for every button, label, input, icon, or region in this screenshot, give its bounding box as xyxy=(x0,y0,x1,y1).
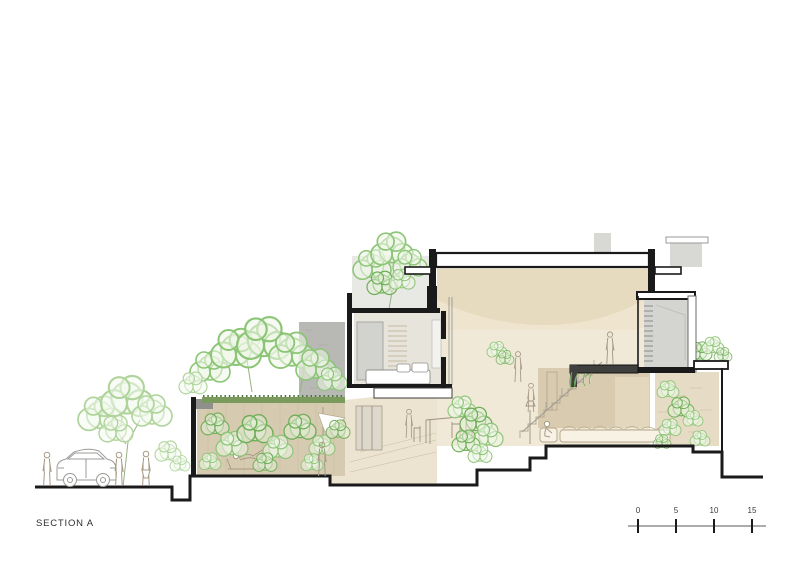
scale-bar: 0 5 10 15 xyxy=(628,506,766,533)
section-a-drawing: SECTION A 0 5 10 15 xyxy=(0,0,800,565)
drawing-title: SECTION A xyxy=(36,518,94,529)
kitchen-cabinet xyxy=(356,406,382,450)
car xyxy=(57,449,116,486)
scale-label-5: 5 xyxy=(674,506,679,515)
section-a-sheet: SECTION A 0 5 10 15 xyxy=(0,0,800,565)
scale-label-10: 10 xyxy=(710,506,719,515)
scale-label-15: 15 xyxy=(748,506,757,515)
title-block: SECTION A xyxy=(36,518,94,529)
scale-label-0: 0 xyxy=(636,506,641,515)
